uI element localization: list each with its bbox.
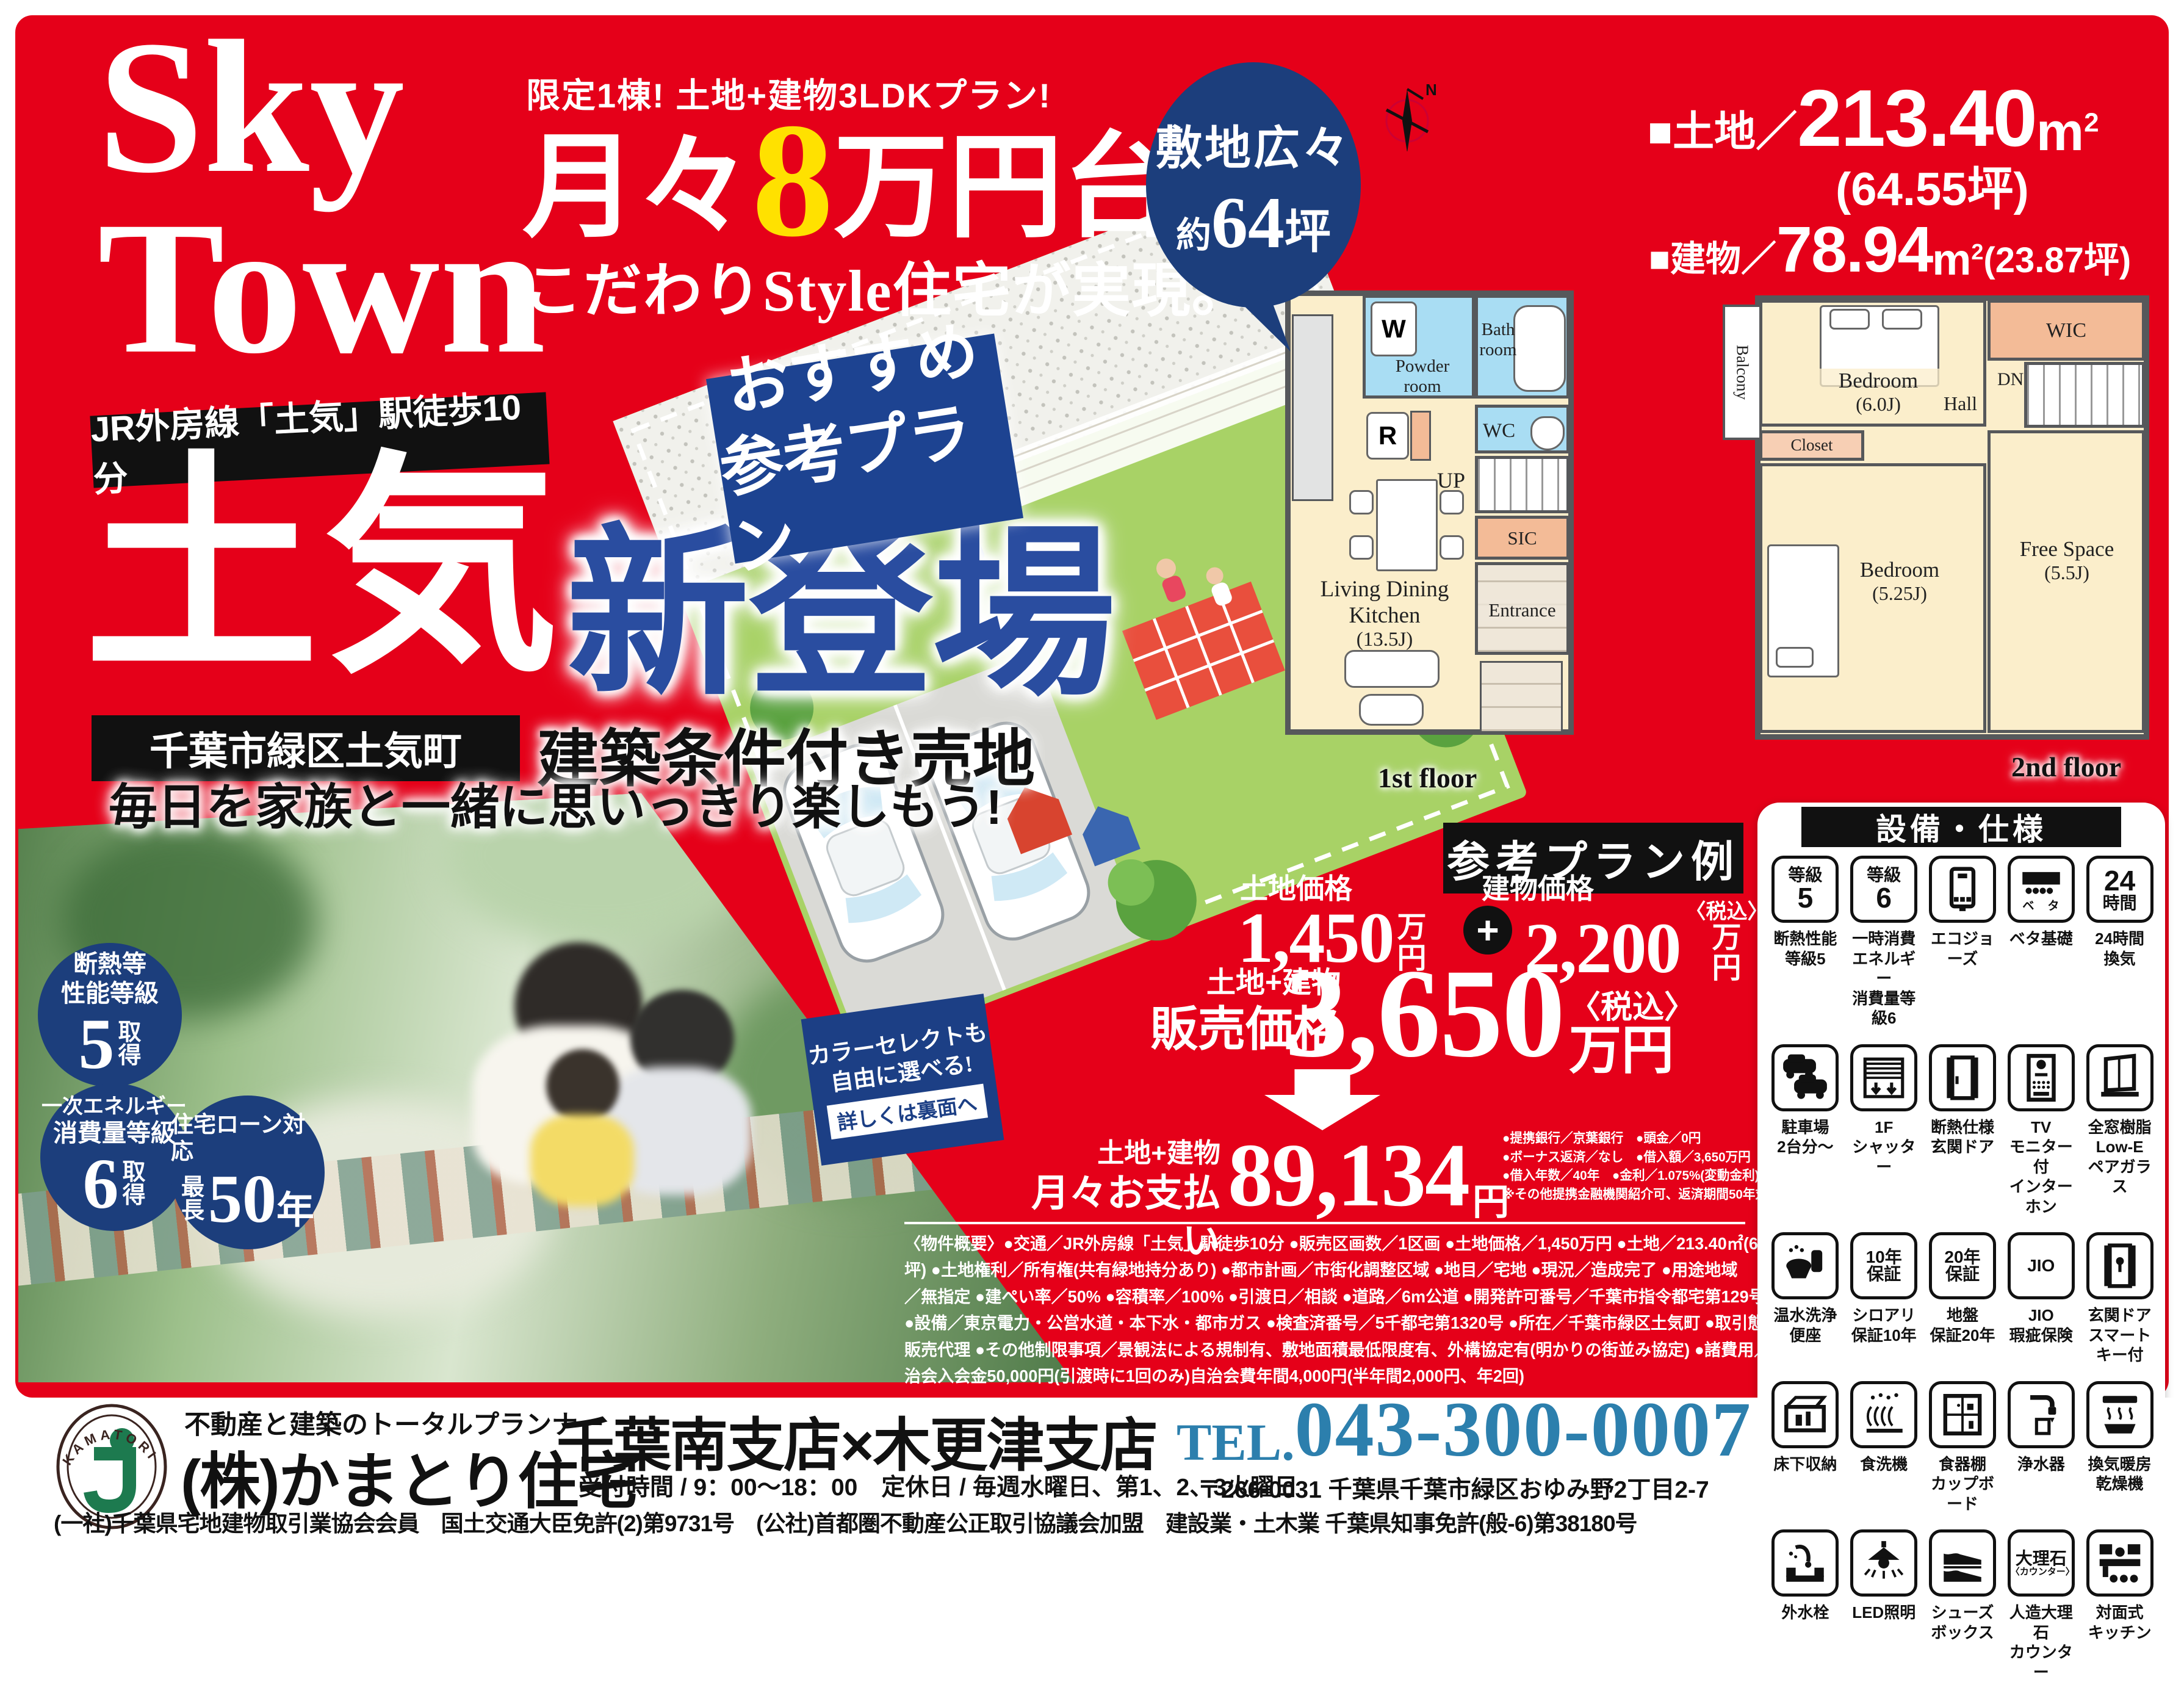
equipment-item: 外水栓 <box>1767 1529 1843 1682</box>
loan-note-line: ●借入年数／40年 ●金利／1.075%(変動金利) <box>1502 1166 1748 1185</box>
chair <box>1440 535 1464 560</box>
room-wc: WC <box>1475 405 1570 453</box>
room-entrance: Entrance <box>1475 562 1570 655</box>
overview-line: ●設備／東京電力・公営水道・本下水・都市ガス ●検査済番号／5千都宅第1320号… <box>904 1310 1734 1336</box>
overview-line: 坪) ●土地権利／所有権(共有緑地持分あり) ●都市計画／市街化調整区域 ●地目… <box>904 1257 1734 1283</box>
room-sic: SIC <box>1475 516 1570 560</box>
grade-number: 5 <box>78 1008 114 1080</box>
room-label-sic: SIC <box>1478 527 1566 549</box>
equipment-label: 一時消費エネルギー消費量等級6 <box>1846 929 1922 1028</box>
stairs-down-label: DN <box>1997 369 2024 391</box>
stairs-up <box>1475 456 1570 513</box>
room-label-balcony: Balcony <box>1732 345 1751 400</box>
site-size-line1: 敷地広々 <box>1156 110 1351 178</box>
low-table <box>1359 694 1424 726</box>
equipment-grid: 等級5断熱性能等級5等級6一時消費エネルギー消費量等級6エコジョーズベタベタ基礎… <box>1767 856 2158 1682</box>
equipment-label: LED照明 <box>1852 1603 1916 1643</box>
equipment-label: 外水栓 <box>1781 1603 1829 1643</box>
chair <box>1349 490 1374 514</box>
land-label: ■土地／ <box>1648 111 1797 159</box>
building-label: ■建物／ <box>1649 242 1776 282</box>
brand-title-sky: Sky <box>98 17 546 198</box>
grade5-icon: 等級5 <box>1771 856 1839 923</box>
equipment-item: ベタベタ基礎 <box>2003 856 2079 1028</box>
license-line: (一社)千葉県宅地建物取引業協会会員 国土交通大臣免許(2)第9731号 (公社… <box>54 1505 1637 1538</box>
loan-term-badge: 住宅ローン対応 最長 50 年 <box>171 1095 325 1249</box>
equipment-item: 等級5断熱性能等級5 <box>1767 856 1843 1028</box>
child-abstract <box>546 1049 619 1122</box>
child-abstract <box>530 1114 634 1206</box>
room-label-bedroom2: Bedroom (5.25J) <box>1829 558 1970 605</box>
washlet-icon <box>1771 1232 1839 1299</box>
pillow <box>1882 309 1922 330</box>
room-label-closet: Closet <box>1762 436 1861 455</box>
equipment-label: 換気暖房乾燥機 <box>2088 1454 2152 1495</box>
equipment-label: 食洗機 <box>1860 1454 1908 1495</box>
bath-dryer-icon <box>2086 1381 2153 1448</box>
cars-icon <box>1771 1044 1839 1111</box>
recommended-plan-badge: おすすめ 参考プラン <box>706 333 1023 563</box>
room-bedroom2: Bedroom (5.25J) <box>1759 463 1986 733</box>
vent24-icon: 24時間 <box>2086 856 2153 923</box>
warranty10-icon: 10年保証 <box>1850 1232 1917 1299</box>
loan-years: 50 <box>208 1165 276 1233</box>
floor-tag-1f: 1st floor <box>1378 762 1477 794</box>
grade6-icon: 等級6 <box>1850 856 1917 923</box>
equipment-label: 人造大理石カウンター <box>2003 1603 2079 1682</box>
shoebox-icon <box>1929 1529 1996 1597</box>
stairs-down <box>2024 362 2145 428</box>
equipment-label: 駐車場2台分～ <box>1777 1117 1833 1158</box>
equipment-label: ベタ基礎 <box>2009 929 2073 969</box>
equipment-label: TVモニター付インターホン <box>2003 1117 2079 1217</box>
equipment-label: JIO瑕疵保険 <box>2009 1305 2073 1346</box>
room-label-wc: WC <box>1483 420 1515 443</box>
insulated-door-icon <box>1929 1044 1996 1111</box>
dishwasher-icon <box>1850 1381 1917 1448</box>
monthly-payment: 89,134 円 <box>1228 1130 1509 1221</box>
shutter-icon <box>1850 1044 1917 1111</box>
tax-included: 〈税込〉 <box>1569 992 1696 1024</box>
equipment-item: エコジョーズ <box>1925 856 2001 1028</box>
building-number: 78.94 <box>1776 217 1932 282</box>
equipment-item: 換気暖房乾燥機 <box>2081 1381 2158 1514</box>
svg-text:タ: タ <box>2047 899 2059 912</box>
fridge-box: R <box>1366 412 1409 460</box>
room-free-space: Free Space (5.5J) <box>1988 430 2145 733</box>
equipment-item: 食器棚カップボード <box>1925 1381 2001 1514</box>
total-price: 3,650 〈税込〉 万円 <box>1285 950 1696 1077</box>
equipment-item: 床下収納 <box>1767 1381 1843 1514</box>
pillow <box>1829 309 1870 330</box>
equipment-item: 駐車場2台分～ <box>1767 1044 1843 1217</box>
equipment-item: TVモニター付インターホン <box>2003 1044 2079 1217</box>
brand-title-town: Town <box>98 198 546 378</box>
equipment-label: 浄水器 <box>2017 1454 2065 1495</box>
grade-number: 6 <box>82 1148 118 1220</box>
dining-table <box>1376 479 1438 571</box>
water-purifier-icon <box>2008 1381 2075 1448</box>
room-bath: Bath room <box>1475 295 1570 399</box>
overview-line: 〈物件概要〉●交通／JR外房線「土気」駅徒歩10分 ●販売区画数／1区画 ●土地… <box>904 1230 1734 1257</box>
intercom-icon <box>2008 1044 2075 1111</box>
compass-icon: N <box>1380 78 1439 151</box>
insulation-grade-badge: 断熱等 性能等級 5 取得 <box>38 943 182 1087</box>
land-area-line: ■土地／213.40m2 <box>1648 78 2099 159</box>
monthly-copy-pre: 月々 <box>522 131 752 245</box>
tel-digits: 043-300-0007 <box>1295 1390 1752 1468</box>
room-label-bath: Bath room <box>1479 320 1517 361</box>
equipment-label: 断熱性能等級5 <box>1773 929 1837 969</box>
equipment-label: 断熱仕様玄関ドア <box>1931 1117 1994 1158</box>
equipment-label: 玄関ドアスマートキー付 <box>2081 1305 2158 1365</box>
equipment-label: 食器棚カップボード <box>1925 1454 2001 1514</box>
tax-included: 〈税込〉 <box>1685 902 1768 923</box>
property-overview: 〈物件概要〉●交通／JR外房線「土気」駅徒歩10分 ●販売区画数／1区画 ●土地… <box>904 1230 1734 1390</box>
overview-line: ／無指定 ●建ぺい率／50% ●容積率／100% ●引渡日／相談 ●道路／6m公… <box>904 1283 1734 1310</box>
energy-grade-badge: 一次エネルギー 消費量等級 6 取得 <box>40 1083 188 1231</box>
site-size-unit: 坪 <box>1285 209 1331 259</box>
overview-line: 販売代理 ●その他制限事項／景観法による規制有、敷地面積最低限度有、外構協定有(… <box>904 1337 1734 1363</box>
room-label-hall: Hall <box>1944 392 1977 415</box>
floor-plan-1f: W Powder room Bath room R WC UP SIC Entr… <box>1291 296 1568 729</box>
equipment-label: 対面式キッチン <box>2088 1603 2152 1643</box>
toilet <box>1530 416 1565 450</box>
building-tsubo: (23.87坪) <box>1983 243 2131 282</box>
building-area-line: ■建物／78.94m2(23.87坪) <box>1649 217 2131 282</box>
business-hours: 受付時間 / 9：00～18：00 定休日 / 毎週水曜日、第1、2、3火曜日 <box>578 1468 1298 1503</box>
room-closet: Closet <box>1759 430 1864 461</box>
room-label-bedroom1: Bedroom (6.0J) <box>1811 369 1945 416</box>
room-wic: WIC <box>1988 300 2145 361</box>
tel-label: TEL. <box>1177 1416 1295 1468</box>
pantry <box>1410 411 1431 461</box>
sofa <box>1344 650 1440 688</box>
equipment-item: 浄水器 <box>2003 1381 2079 1514</box>
site-size-bubble: 敷地広々 約 64 坪 <box>1146 62 1361 308</box>
equipment-label: エコジョーズ <box>1925 929 2001 969</box>
room-label-ldk: Living Dining Kitchen (13.5J) <box>1305 577 1464 652</box>
equipment-label: 地盤保証20年 <box>1930 1305 1995 1346</box>
family-tagline: 毎日を家族と一緒に思いっきり楽しもう! <box>109 768 1002 839</box>
equipment-item: 20年保証地盤保証20年 <box>1925 1232 2001 1365</box>
equipment-item: 全窓樹脂Low-Eペアガラス <box>2081 1044 2158 1217</box>
pillow <box>1776 647 1814 668</box>
water-heater-icon <box>1929 856 1996 923</box>
equipment-label: 24時間換気 <box>2095 929 2144 969</box>
room-label-powder: Powder room <box>1377 356 1468 397</box>
chair <box>1440 490 1464 514</box>
equipment-item: 大理石〈カウンター〉人造大理石カウンター <box>2003 1529 2079 1682</box>
porch <box>1480 661 1563 733</box>
divider <box>904 1222 1745 1224</box>
svg-text:N: N <box>1425 81 1437 99</box>
equipment-item: 温水洗浄便座 <box>1767 1232 1843 1365</box>
kodawari-copy: こだわりStyle住宅が実現。 <box>524 243 1252 328</box>
equipment-item: 玄関ドアスマートキー付 <box>2081 1232 2158 1365</box>
equipment-item: 食洗機 <box>1846 1381 1922 1514</box>
led-icon <box>1850 1529 1917 1597</box>
washer-box: W <box>1371 301 1417 356</box>
equipment-item: JIOJIO瑕疵保険 <box>2003 1232 2079 1365</box>
equipment-label: シロアリ保証10年 <box>1851 1305 1917 1346</box>
room-label-free-space: Free Space (5.5J) <box>1997 537 2137 584</box>
floor-tag-2f: 2nd floor <box>2011 751 2121 783</box>
cupboard-icon <box>1929 1381 1996 1448</box>
loan-note-line: ●提携銀行／京葉銀行 ●頭金／0円 <box>1502 1129 1748 1148</box>
loan-note-line: ※その他提携金融機関紹介可、返済期間50年対応可 <box>1502 1185 1748 1204</box>
loan-note-line: ●ボーナス返済／なし ●借入額／3,650万円 <box>1502 1148 1748 1167</box>
monthly-copy-number: 8 <box>752 115 834 245</box>
equipment-label: シューズボックス <box>1931 1603 1994 1643</box>
marble-icon: 大理石〈カウンター〉 <box>2008 1529 2075 1597</box>
land-tsubo: (64.55坪) <box>1836 151 2029 218</box>
floor-plan-2f: Balcony Bedroom (6.0J) WIC DN Hall Close… <box>1761 301 2144 734</box>
equipment-item: 1Fシャッター <box>1846 1044 1922 1217</box>
warranty20-icon: 20年保証 <box>1929 1232 1996 1299</box>
equipment-label: 温水洗浄便座 <box>1773 1305 1837 1346</box>
equipment-item: 断熱仕様玄関ドア <box>1925 1044 2001 1217</box>
building-price-label: 建物価格 <box>1482 867 1594 907</box>
town-name: 土気 <box>84 453 564 688</box>
land-number: 213.40 <box>1797 78 2036 159</box>
svg-text:ベ: ベ <box>2022 900 2034 912</box>
kitchen-icon <box>2086 1529 2153 1597</box>
outdoor-faucet-icon <box>1771 1529 1839 1597</box>
room-label-entrance: Entrance <box>1478 599 1566 621</box>
room-powder: W Powder room <box>1363 295 1475 399</box>
bathtub <box>1513 305 1566 392</box>
equipment-item: シューズボックス <box>1925 1529 2001 1682</box>
loan-notes: ●提携銀行／京葉銀行 ●頭金／0円●ボーナス返済／なし ●借入額／3,650万円… <box>1502 1129 1748 1204</box>
address: 〒266-0031 千葉県千葉市緑区おゆみ野2丁目2-7 <box>1197 1471 1709 1505</box>
underfloor-icon <box>1771 1381 1839 1448</box>
pair-glass-icon <box>2086 1044 2153 1111</box>
equipment-label: 1Fシャッター <box>1846 1117 1922 1177</box>
room-label-wic: WIC <box>1991 319 2142 342</box>
equipment-item: 10年保証シロアリ保証10年 <box>1846 1232 1922 1365</box>
phone-number: TEL.043-300-0007 <box>1177 1390 1752 1468</box>
smartkey-door-icon <box>2086 1232 2153 1299</box>
jio-icon: JIO <box>2008 1232 2075 1299</box>
equipment-item: 対面式キッチン <box>2081 1529 2158 1682</box>
equipment-label: 全窓樹脂Low-Eペアガラス <box>2081 1117 2158 1197</box>
balcony: Balcony <box>1723 305 1762 440</box>
equipment-item: 等級6一時消費エネルギー消費量等級6 <box>1846 856 1922 1028</box>
kitchen-counter <box>1292 314 1333 501</box>
equipment-label: 床下収納 <box>1773 1454 1837 1495</box>
chair <box>1349 535 1374 560</box>
site-size-number: 64 <box>1211 186 1285 259</box>
foundation-icon: ベタ <box>2008 856 2075 923</box>
equipment-item: LED照明 <box>1846 1529 1922 1682</box>
site-size-approx: 約 <box>1176 218 1211 259</box>
brand-title: Sky Town <box>98 17 546 379</box>
equipment-item: 24時間24時間換気 <box>2081 856 2158 1028</box>
equipment-title: 設備・仕様 <box>1801 807 2121 847</box>
color-select-badge: カラーセレクトも 自由に選べる! 詳しくは裏面へ <box>801 994 1004 1166</box>
